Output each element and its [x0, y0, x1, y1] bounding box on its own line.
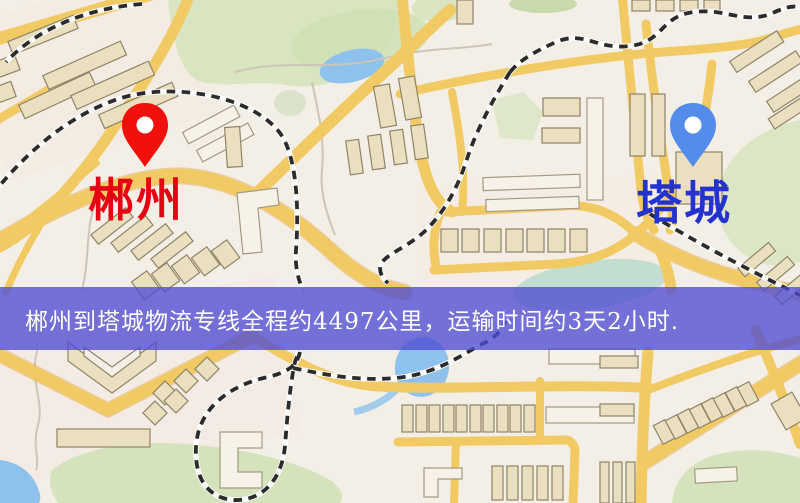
route-info-banner: 郴州到塔城物流专线全程约4497公里，运输时间约3天2小时. [0, 287, 800, 350]
origin-pin-hole [137, 117, 154, 134]
logistics-route-map: 郴州 塔城 郴州到塔城物流专线全程约4497公里，运输时间约3天2小时. [0, 0, 800, 503]
destination-pin-hole [685, 117, 702, 134]
destination-pin-body [670, 103, 716, 167]
destination-city-label: 塔城 [636, 180, 732, 226]
origin-map-pin[interactable] [120, 101, 170, 171]
route-info-text: 郴州到塔城物流专线全程约4497公里，运输时间约3天2小时. [25, 302, 679, 336]
map-canvas[interactable] [0, 0, 800, 503]
destination-map-pin[interactable] [668, 101, 718, 171]
origin-pin-body [122, 103, 168, 167]
origin-city-label: 郴州 [88, 177, 184, 223]
